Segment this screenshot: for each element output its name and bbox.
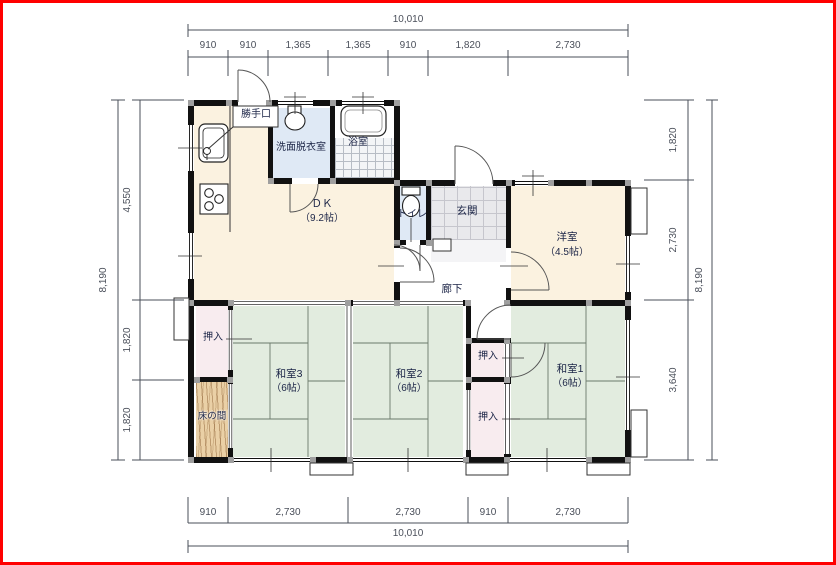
dim-right-total: 8,190	[694, 250, 706, 310]
dim-top-total: 10,010	[378, 14, 438, 25]
dim-bottom-seg-3: 910	[458, 507, 518, 518]
dim-top-seg-4: 910	[378, 40, 438, 51]
dim-bottom-total: 10,010	[378, 528, 438, 539]
label-washroom: 洗面脱衣室	[268, 142, 334, 153]
label-western-room-size: （4.5帖）	[533, 247, 601, 258]
label-washitsu2-size: （6帖）	[379, 383, 439, 394]
label-western-room: 洋室	[537, 232, 597, 244]
label-washitsu1: 和室1	[540, 364, 600, 376]
dim-right-seg-0: 1,820	[668, 110, 680, 170]
entrance-step-box	[433, 239, 451, 251]
label-dk: ＤＫ	[292, 199, 352, 211]
label-washitsu1-size: （6帖）	[540, 378, 600, 389]
dim-right-seg-2: 3,640	[668, 350, 680, 410]
stove-icon	[200, 184, 228, 214]
dim-bottom-seg-2: 2,730	[378, 507, 438, 518]
label-toilet: トイレ	[390, 209, 434, 220]
dim-right-seg-1: 2,730	[668, 210, 680, 270]
kitchen-sink-icon	[199, 124, 228, 162]
label-washitsu3: 和室3	[259, 369, 319, 381]
door-arcs	[238, 70, 549, 377]
label-kitchen-door: 勝手口	[234, 109, 278, 120]
bathtub-icon	[341, 106, 386, 136]
dim-left-seg-2: 1,820	[122, 390, 134, 450]
dim-left-seg-1: 1,820	[122, 310, 134, 370]
dim-top-seg-2: 1,365	[268, 40, 328, 51]
label-closet-left: 押入	[194, 332, 232, 343]
dim-bottom-seg-0: 910	[178, 507, 238, 518]
label-closet-right-lower: 押入	[469, 412, 507, 423]
floorplan-drawing	[0, 0, 836, 565]
floor-plan-canvas: 勝手口 洗面脱衣室 浴室 ＤＫ （9.2帖） トイレ 玄関 洋室 （4.5帖） …	[0, 0, 836, 565]
label-closet-right-upper: 押入	[469, 351, 507, 362]
dim-top-seg-6: 2,730	[538, 40, 598, 51]
label-washitsu3-size: （6帖）	[259, 383, 319, 394]
dim-left-total: 8,190	[98, 250, 110, 310]
dim-top-seg-5: 1,820	[438, 40, 498, 51]
dim-left-seg-0: 4,550	[122, 170, 134, 230]
label-dk-size: （9.2帖）	[292, 213, 352, 224]
label-corridor: 廊下	[430, 284, 474, 296]
label-bathroom: 浴室	[336, 137, 380, 148]
label-tokonoma: 床の間	[192, 412, 232, 422]
label-washitsu2: 和室2	[379, 369, 439, 381]
dim-bottom-seg-4: 2,730	[538, 507, 598, 518]
dim-bottom-seg-1: 2,730	[258, 507, 318, 518]
label-entrance: 玄関	[444, 206, 490, 218]
